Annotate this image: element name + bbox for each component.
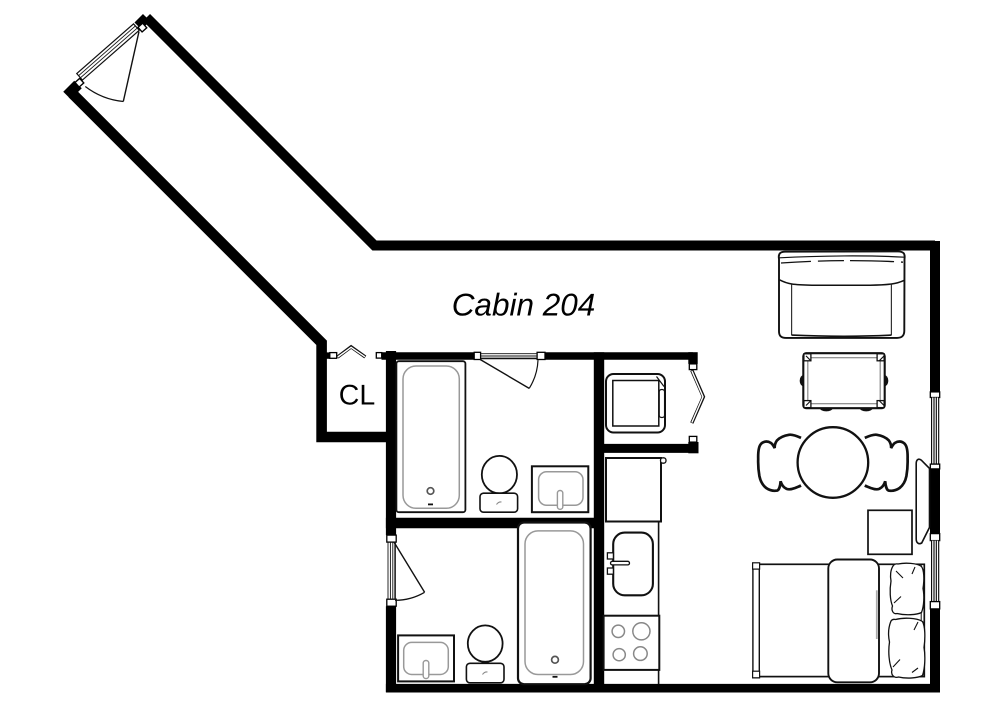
- svg-text:CL: CL: [339, 380, 375, 412]
- svg-text:Cabin 204: Cabin 204: [452, 287, 596, 323]
